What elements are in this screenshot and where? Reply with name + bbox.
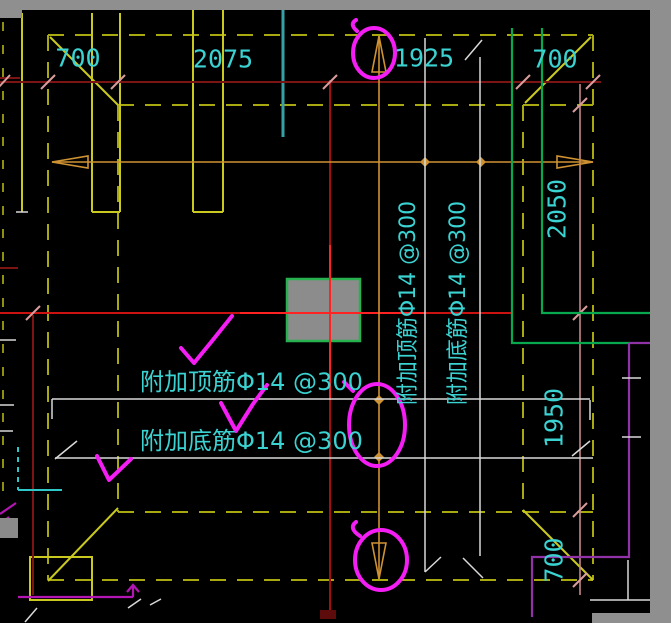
column-section bbox=[287, 279, 360, 341]
pink-circle-mid bbox=[349, 384, 405, 466]
pink-check-mid bbox=[221, 385, 267, 431]
cyan-edge-fragments bbox=[18, 447, 62, 490]
axis-lines-red bbox=[0, 78, 601, 612]
pink-check-top bbox=[181, 316, 232, 363]
cad-drawing-canvas[interactable]: 700 2075 1925 700 2050 1950 700 附加顶筋Φ14 … bbox=[0, 0, 671, 623]
purple-leader bbox=[0, 503, 139, 597]
pink-check-small bbox=[97, 456, 131, 480]
green-wall-lines bbox=[512, 28, 652, 343]
grip-diamonds bbox=[374, 157, 486, 462]
cad-linework bbox=[0, 0, 671, 623]
